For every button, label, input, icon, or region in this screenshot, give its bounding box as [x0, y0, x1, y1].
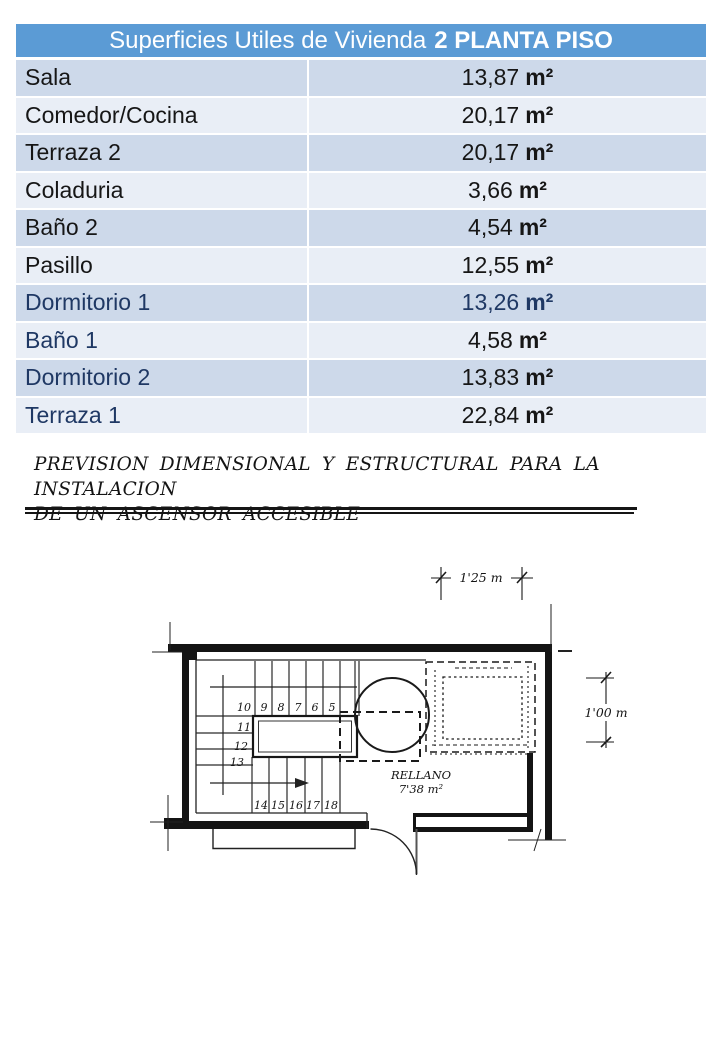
- area-unit: m²: [519, 327, 547, 354]
- area-value: 20,17: [462, 139, 520, 166]
- room-area: 3,66m²: [309, 173, 706, 209]
- area-unit: m²: [525, 402, 553, 429]
- area-value: 20,17: [462, 102, 520, 129]
- area-value: 12,55: [462, 252, 520, 279]
- step-number: 16: [289, 799, 303, 812]
- floor-plan: 1'25 m 1'00 m RELLANO 7'38 m² 10 9 8 7 6…: [0, 540, 720, 940]
- area-value: 13,83: [462, 364, 520, 391]
- area-unit: m²: [519, 177, 547, 204]
- step-number: 12: [234, 740, 248, 753]
- step-number: 18: [324, 799, 338, 812]
- area-unit: m²: [525, 139, 553, 166]
- step-number: 7: [295, 701, 302, 714]
- table-row: Coladuria 3,66m²: [16, 173, 706, 209]
- step-number: 8: [278, 701, 285, 714]
- rellano-label: RELLANO 7'38 m²: [390, 768, 452, 796]
- step-number: 9: [261, 701, 268, 714]
- room-area: 13,26m²: [309, 285, 706, 321]
- area-unit: m²: [525, 252, 553, 279]
- table-row: Terraza 2 20,17m²: [16, 135, 706, 171]
- table-row: Dormitorio 2 13,83m²: [16, 360, 706, 396]
- table-title-bold: 2 PLANTA PISO: [434, 27, 613, 55]
- table-row: Pasillo 12,55m²: [16, 248, 706, 284]
- area-unit: m²: [525, 64, 553, 91]
- room-area: 20,17m²: [309, 135, 706, 171]
- rellano-name: RELLANO: [390, 768, 452, 782]
- plan-heading-line2: DE UN ASCENSOR ACCESIBLE: [34, 502, 654, 527]
- area-value: 22,84: [462, 402, 520, 429]
- room-label: Dormitorio 1: [16, 285, 307, 321]
- area-value: 13,26: [462, 289, 520, 316]
- dimension-right-label: 1'00 m: [584, 705, 627, 720]
- table-row: Terraza 1 22,84m²: [16, 398, 706, 434]
- heading-underline-top: [25, 507, 637, 510]
- area-value: 4,54: [468, 214, 513, 241]
- exterior-step: [213, 829, 355, 849]
- step-number: 15: [271, 799, 285, 812]
- room-area: 13,83m²: [309, 360, 706, 396]
- area-unit: m²: [519, 214, 547, 241]
- step-number: 6: [312, 701, 319, 714]
- step-number: 10: [237, 701, 251, 714]
- area-unit: m²: [525, 102, 553, 129]
- room-label: Terraza 1: [16, 398, 307, 434]
- room-label: Pasillo: [16, 248, 307, 284]
- room-label: Baño 2: [16, 210, 307, 246]
- step-number: 11: [237, 721, 251, 734]
- room-area: 12,55m²: [309, 248, 706, 284]
- elevator-shaft-circle: [355, 678, 429, 752]
- plan-heading-line1: PREVISION DIMENSIONAL Y ESTRUCTURAL PARA…: [34, 452, 654, 502]
- table-row: Baño 1 4,58m²: [16, 323, 706, 359]
- table-title-regular: Superficies Utiles de Vivienda: [109, 27, 426, 55]
- room-area: 4,54m²: [309, 210, 706, 246]
- room-area: 13,87m²: [309, 60, 706, 96]
- areas-table: Superficies Utiles de Vivienda 2 PLANTA …: [16, 24, 706, 435]
- room-label: Terraza 2: [16, 135, 307, 171]
- step-number: 17: [306, 799, 320, 812]
- step-number: 13: [230, 756, 244, 769]
- rellano-area: 7'38 m²: [399, 782, 444, 796]
- room-label: Sala: [16, 60, 307, 96]
- step-number: 5: [329, 701, 336, 714]
- room-label: Dormitorio 2: [16, 360, 307, 396]
- room-area: 22,84m²: [309, 398, 706, 434]
- room-label: Coladuria: [16, 173, 307, 209]
- step-number: 14: [254, 799, 268, 812]
- room-label: Baño 1: [16, 323, 307, 359]
- dimension-top: 1'25 m: [431, 567, 533, 600]
- table-title: Superficies Utiles de Vivienda 2 PLANTA …: [16, 24, 706, 57]
- dimension-top-label: 1'25 m: [459, 570, 502, 585]
- table-row: Comedor/Cocina 20,17m²: [16, 98, 706, 134]
- room-area: 20,17m²: [309, 98, 706, 134]
- table-row: Dormitorio 1 13,26m²: [16, 285, 706, 321]
- room-label: Comedor/Cocina: [16, 98, 307, 134]
- stair-landing: [253, 716, 357, 757]
- area-value: 3,66: [468, 177, 513, 204]
- table-row: Baño 2 4,54m²: [16, 210, 706, 246]
- entry-door: [371, 829, 417, 875]
- plan-heading: PREVISION DIMENSIONAL Y ESTRUCTURAL PARA…: [34, 452, 654, 527]
- area-unit: m²: [525, 289, 553, 316]
- room-area: 4,58m²: [309, 323, 706, 359]
- area-value: 4,58: [468, 327, 513, 354]
- heading-underline-bottom: [25, 512, 634, 514]
- table-row: Sala 13,87m²: [16, 60, 706, 96]
- structural-reservation: [426, 662, 535, 754]
- area-unit: m²: [525, 364, 553, 391]
- dimension-right: 1'00 m: [582, 672, 630, 748]
- area-value: 13,87: [462, 64, 520, 91]
